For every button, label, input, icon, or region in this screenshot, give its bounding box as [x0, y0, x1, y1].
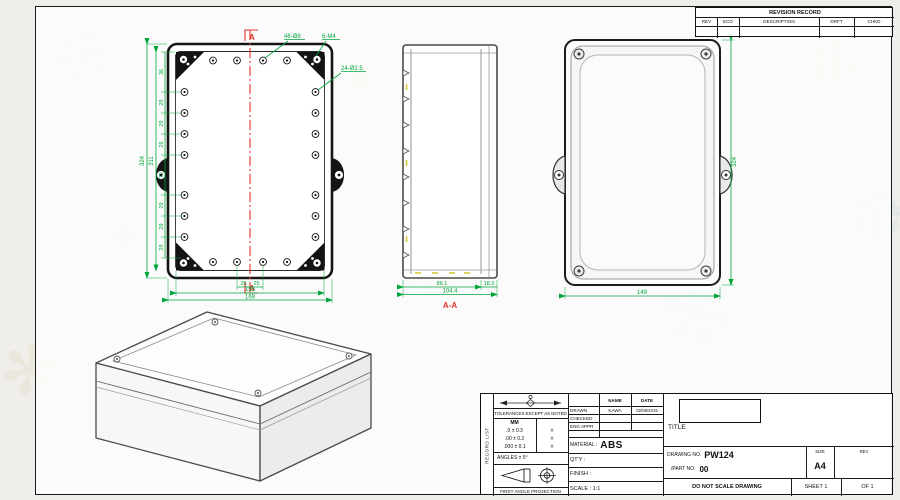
part-no-row: /PART NO. 00 [663, 462, 814, 476]
material-label: MATERIAL : [570, 442, 597, 448]
dim-chain: 29 [159, 141, 165, 147]
dim-inner-height: 311 [149, 156, 155, 166]
annotation-holes-1: 46-Ø8 [284, 34, 301, 40]
revision-col-chkd: CHKD [854, 17, 894, 26]
revision-col-eco: ECO [717, 17, 739, 26]
section-view: 86.1 18.3 104.4 A-A [403, 45, 497, 310]
dim-section-overall: 104.4 [442, 289, 458, 295]
dim-chain: 29 [159, 223, 165, 229]
revision-col-rev: REV [696, 17, 717, 26]
finish-label: FINISH : [568, 467, 665, 481]
col-date-header: DATE [631, 394, 663, 406]
dim-chain: 29 [159, 120, 165, 126]
tolerance-row: .0 ± 0.3 [493, 427, 536, 435]
dim-section-lip: 18.3 [484, 281, 495, 287]
annotation-holes-2: 6-M4 [322, 34, 336, 40]
qty-label: QT'Y : [568, 453, 665, 467]
tolerance-unit: MM [493, 419, 536, 426]
section-marker-top: A [249, 33, 255, 42]
drawing-no-row: DRAWING NO. PW124 [663, 447, 810, 462]
tolerance-pm: ± [536, 427, 568, 435]
of-cell: OF 1 [841, 478, 894, 496]
drawing-no-label: DRAWING NO. [667, 452, 701, 458]
title-label: TITLE [663, 420, 788, 434]
datum-arrow-symbol [494, 394, 567, 408]
part-no-value: 00 [699, 465, 708, 474]
drawn-label: DRAWN [568, 406, 601, 414]
tolerance-note: TOLERANCES EXCEPT AS NOTED [493, 408, 568, 418]
revision-col-description: DESCRIPTION [739, 17, 819, 26]
dim-back-height: 324 [732, 156, 738, 167]
front-view: A A 324 311 36 [140, 30, 366, 303]
checked-label: CHECKED [568, 414, 601, 422]
material-row: MATERIAL : ABS [568, 437, 665, 453]
isometric-view [96, 312, 371, 481]
back-view: 149 324 [553, 40, 738, 299]
dim-chain: 29 [159, 244, 165, 250]
dim-overall-width: 169 [245, 295, 256, 301]
dim-inner-width: 155 [245, 287, 256, 293]
title-block: RECORD LIST TOLERANCES EXCEPT AS NOTED M… [480, 393, 893, 495]
projection-label: FIRST ANGLE PROJECTION [493, 487, 568, 496]
tolerance-row: .00 ± 0.2 [493, 435, 536, 443]
drawing-no-value: PW124 [704, 450, 734, 460]
no-scale-note: DO NOT SCALE DRAWING [663, 478, 791, 496]
side-strip-label: RECORD LIST [485, 427, 490, 463]
eng-appr-label: ENG APPR [568, 422, 601, 430]
dim-section-body: 86.1 [437, 281, 448, 287]
section-label: A-A [443, 301, 457, 310]
revision-col-drft: DRFT [819, 17, 854, 26]
scale-text: SCALE : 1:1 [568, 481, 665, 496]
tolerance-row: .000 ± 0.1 [493, 443, 536, 451]
title-block-side-strip: RECORD LIST [481, 394, 493, 496]
revision-table-title: REVISION RECORD [696, 8, 894, 17]
dim-overall-height: 324 [140, 155, 146, 166]
material-value: ABS [600, 440, 623, 451]
drawn-date: 02/05/2015 [631, 406, 663, 414]
tolerance-pm: ± [536, 435, 568, 443]
col-name-header: NAME [599, 394, 631, 406]
part-no-label: /PART NO. [671, 466, 695, 472]
dim-chain: 29 [159, 99, 165, 105]
annotation-holes-3: 24-Ø2.5 [341, 66, 363, 72]
tolerance-pm: ± [536, 443, 568, 451]
rev-label: REV [834, 447, 894, 455]
size-label: SIZE [806, 447, 834, 455]
drawn-name: KAWA [599, 406, 631, 414]
size-value: A4 [806, 455, 834, 477]
dim-chain: 72 [159, 172, 165, 178]
projection-symbol [494, 464, 567, 487]
dim-chain: 29 [159, 202, 165, 208]
dim-chain: 36 [159, 69, 165, 75]
sheet-cell: SHEET 1 [791, 478, 841, 496]
angles-tolerance: ANGLES ± 5° [493, 452, 572, 464]
revision-table: REVISION RECORD REV ECO DESCRIPTION DRFT… [695, 7, 893, 37]
dim-back-width: 149 [637, 290, 648, 296]
